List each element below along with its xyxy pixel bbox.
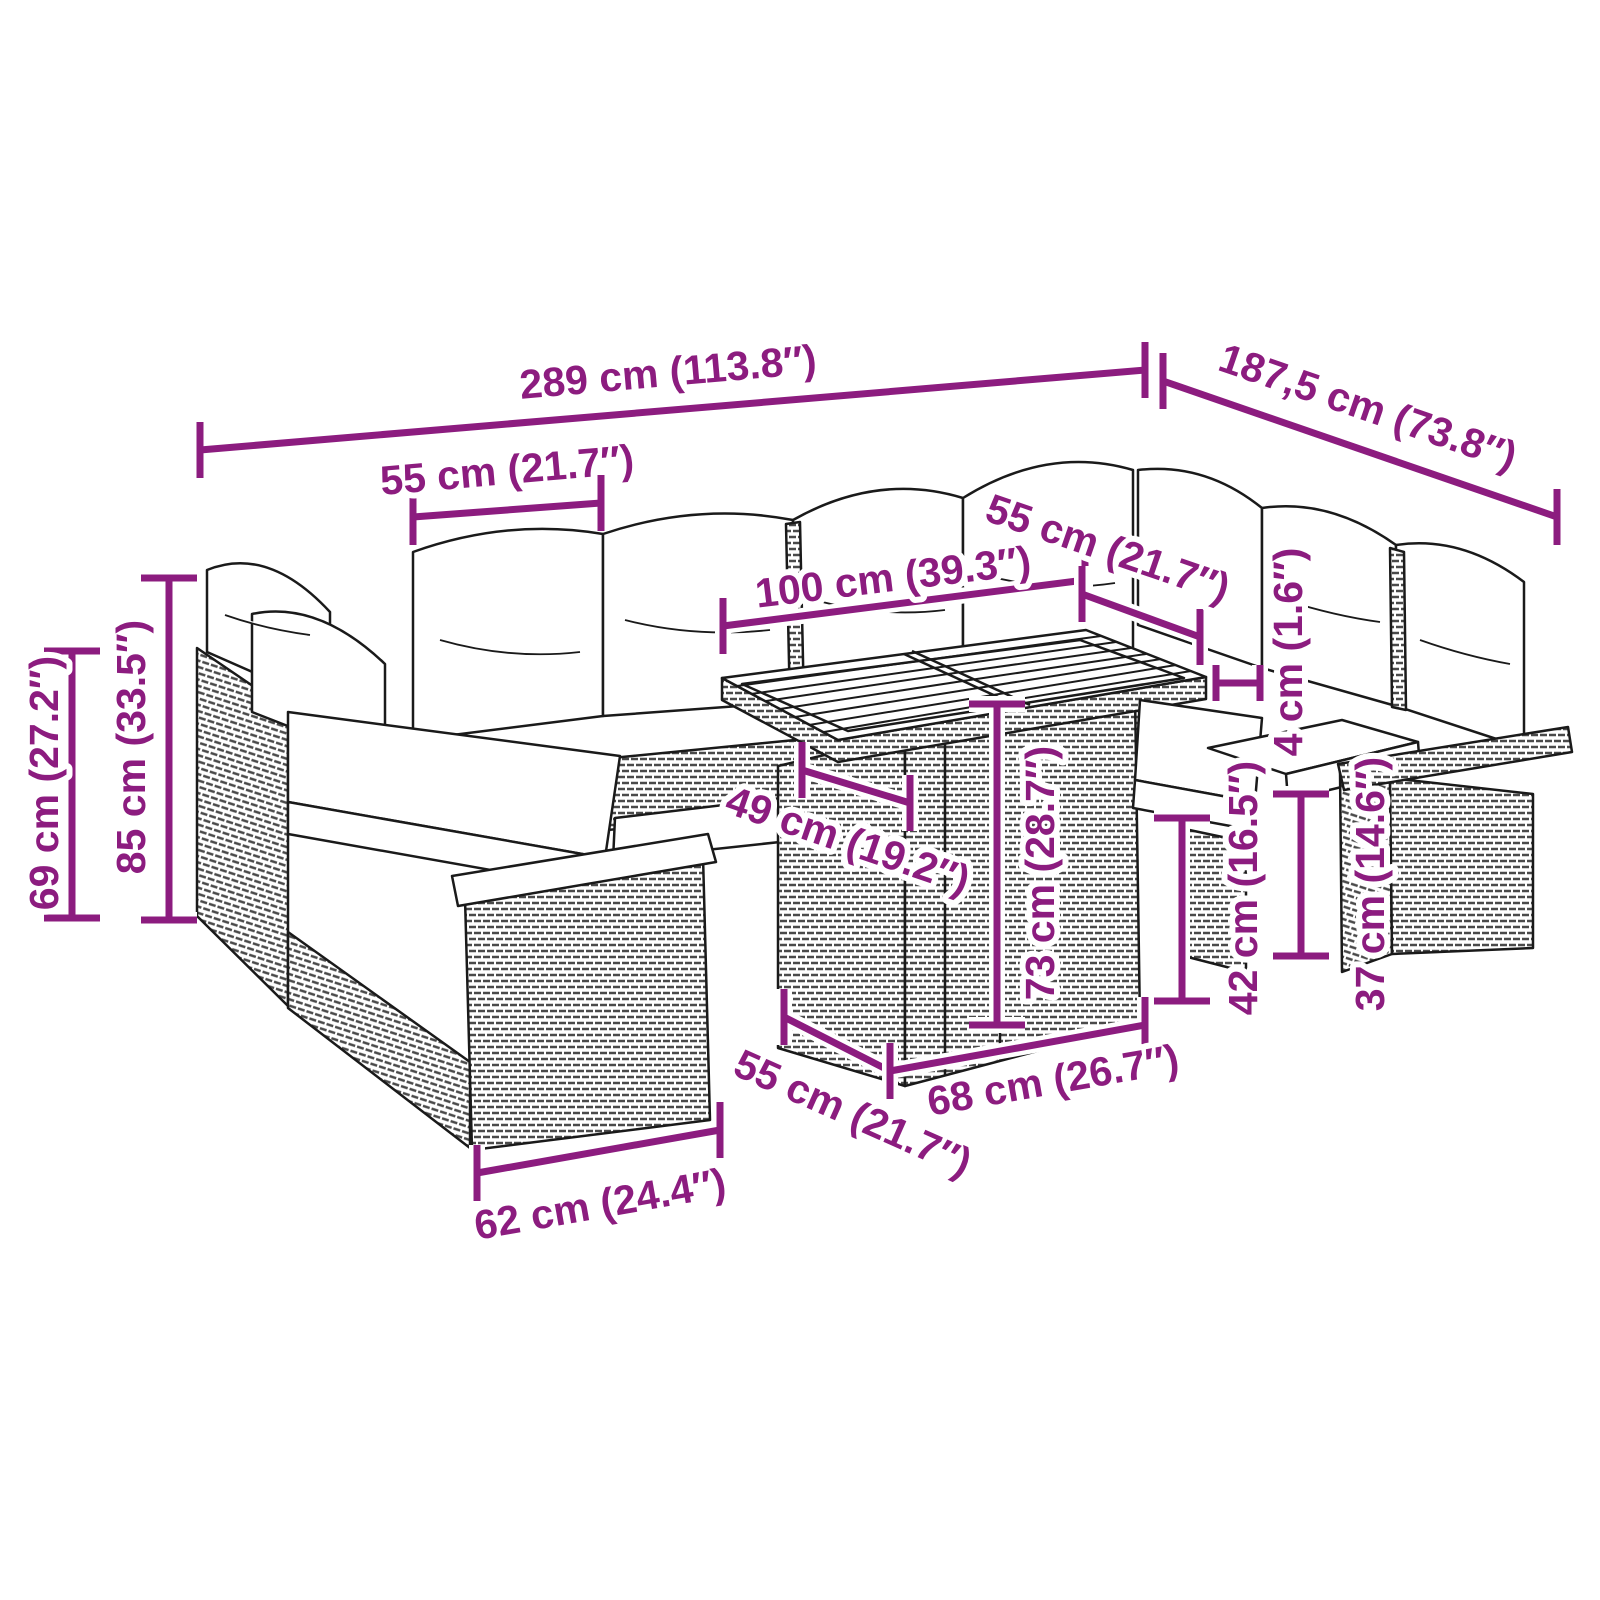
back-cushion <box>413 529 603 740</box>
diagram-canvas: 289 cm (113.8″)187,5 cm (73.8″)55 cm (21… <box>0 0 1600 1600</box>
dim-label-total-height: 85 cm (33.5″) <box>108 620 154 874</box>
dimension-diagram: 289 cm (113.8″)187,5 cm (73.8″)55 cm (21… <box>0 0 1600 1600</box>
dim-label-table-height: 73 cm (28.7″) <box>1017 746 1063 1000</box>
dim-label-cushion-thickness: 4 cm (1.6″) <box>1265 548 1311 757</box>
dim-label-back-height: 69 cm (27.2″) <box>21 656 67 910</box>
back-frame-post <box>1390 548 1406 710</box>
dim-label-seat-height: 42 cm (16.5″) <box>1220 761 1266 1015</box>
dimension-total-width: 289 cm (113.8″) <box>200 336 1145 478</box>
dim-label-base-height: 37 cm (14.6″) <box>1347 757 1393 1011</box>
dimension-back-height: 69 cm (27.2″) <box>21 651 100 918</box>
armrest-cube <box>465 856 710 1150</box>
sofa-left-front-skirt <box>288 932 470 1148</box>
back-cushion <box>1396 543 1524 748</box>
dimension-total-height: 85 cm (33.5″) <box>108 578 197 920</box>
dimension-base-height: 37 cm (14.6″) <box>1273 757 1393 1011</box>
dimension-seat-module-width: 55 cm (21.7″) <box>378 436 635 545</box>
armchair-cube-front <box>1390 778 1533 954</box>
